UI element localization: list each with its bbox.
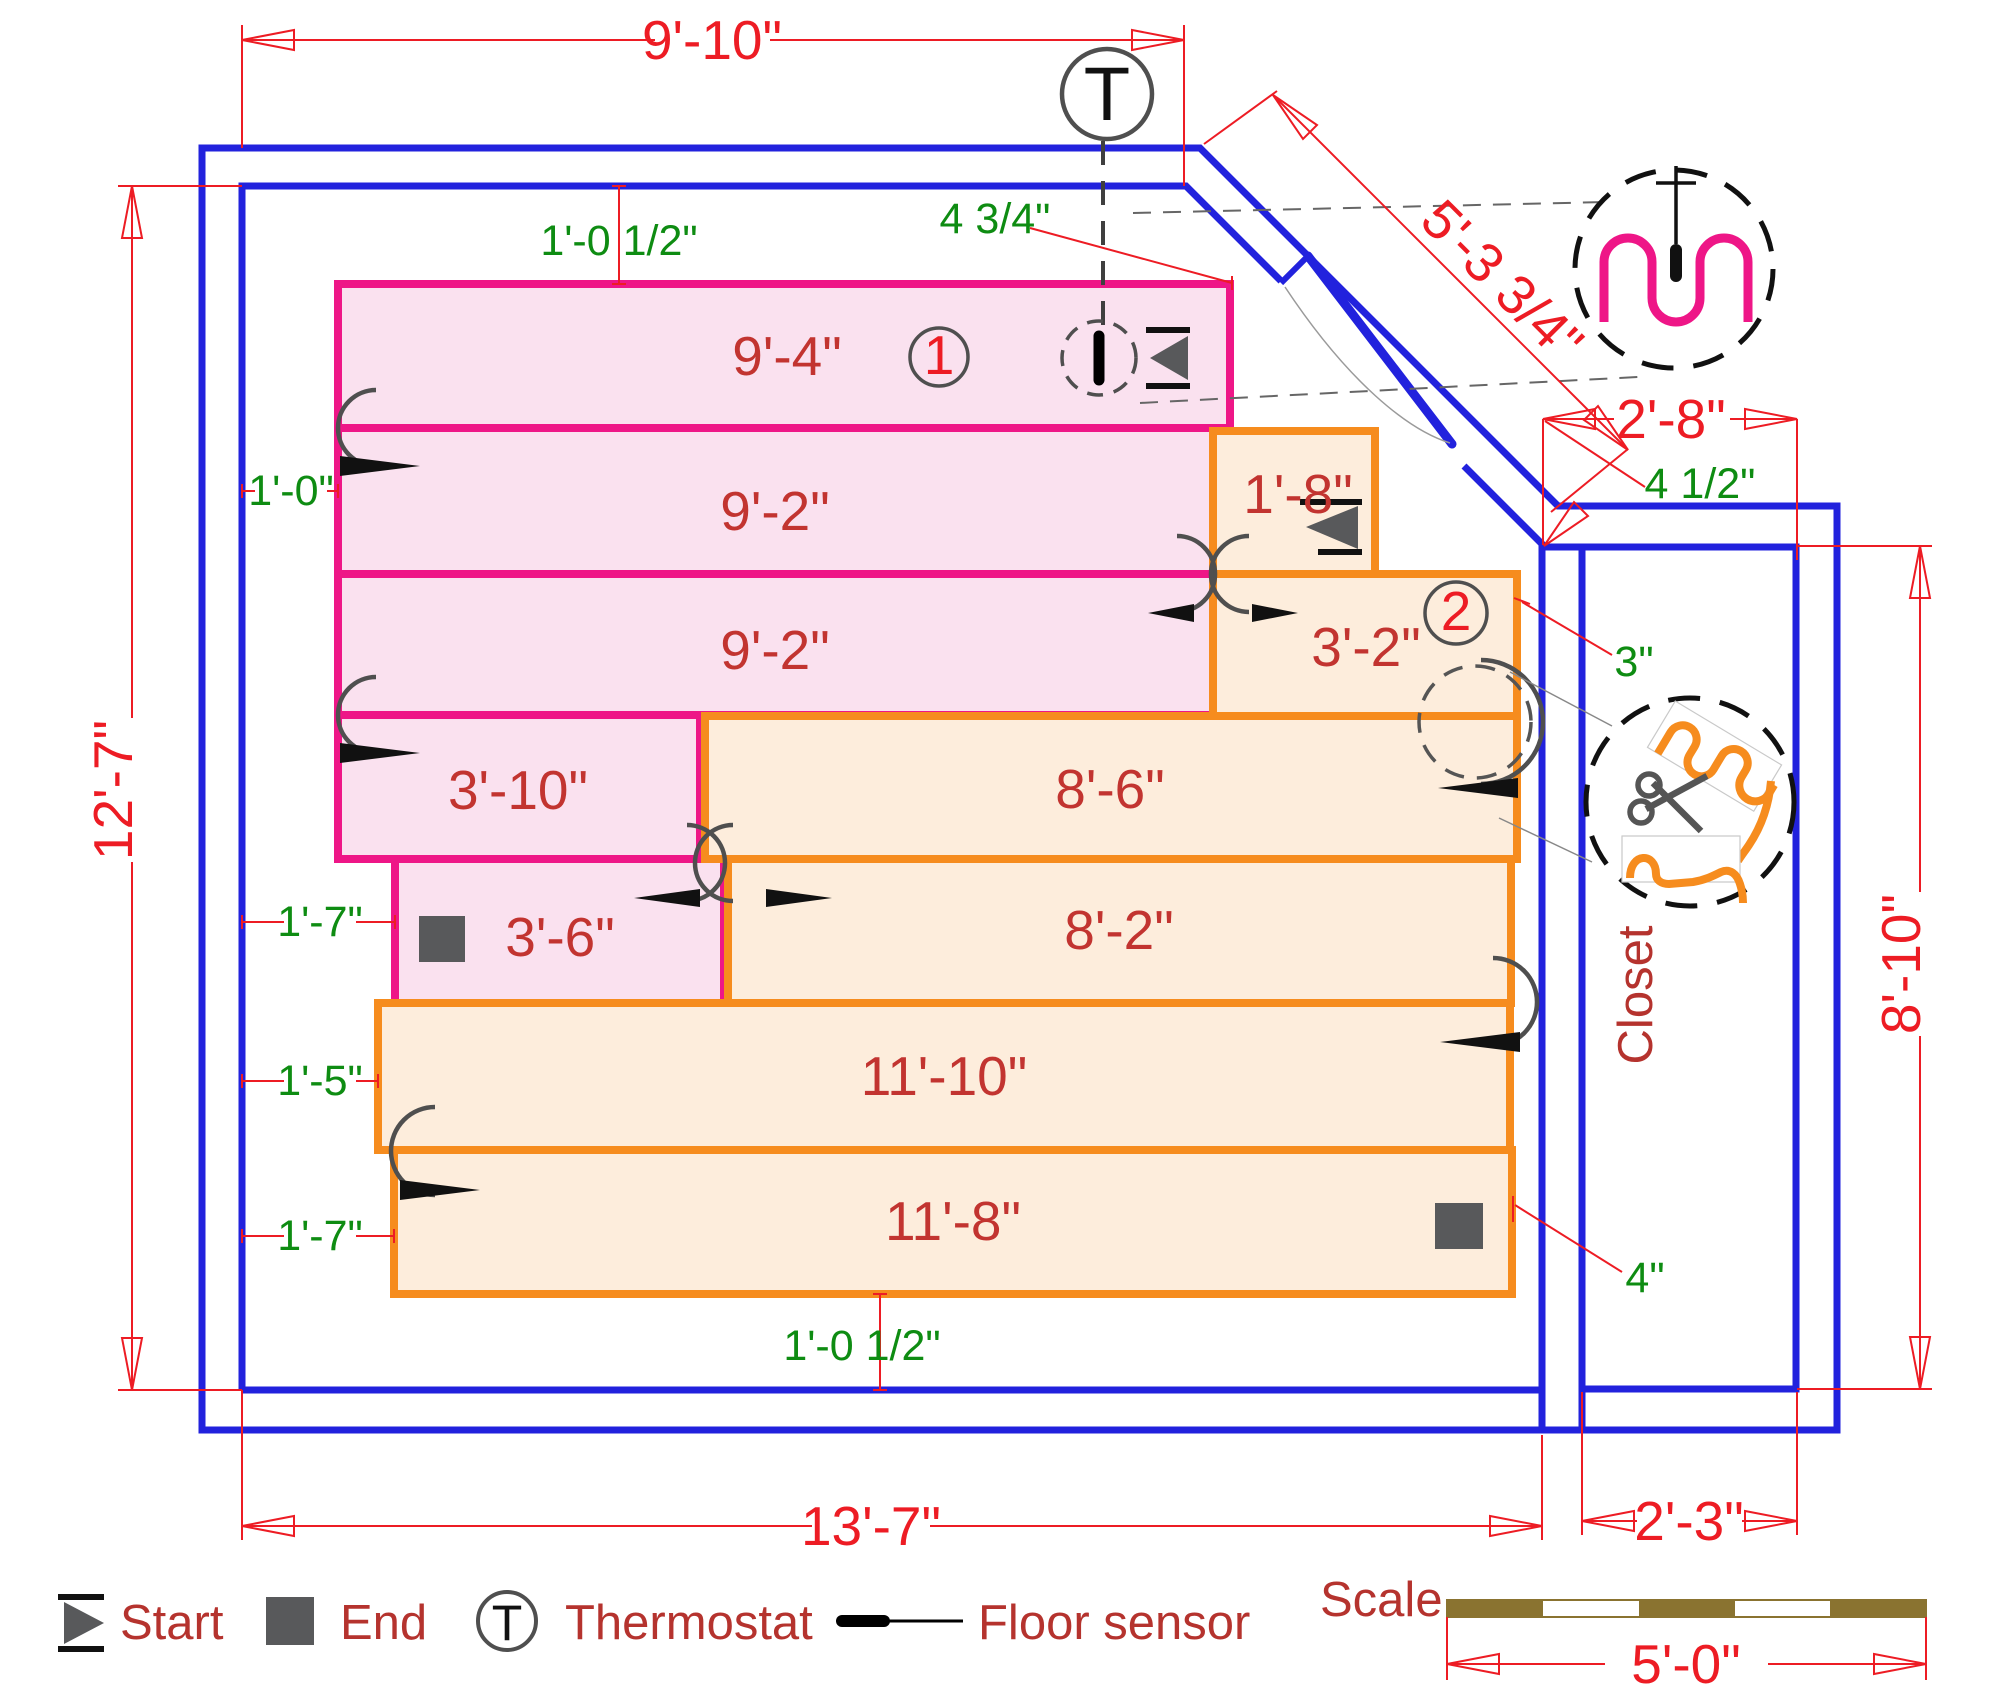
svg-text:8'-2": 8'-2"	[1064, 899, 1174, 961]
svg-text:1'-0": 1'-0"	[248, 467, 334, 515]
svg-text:4": 4"	[1625, 1254, 1664, 1302]
svg-text:9'-4": 9'-4"	[732, 325, 842, 387]
svg-text:2'-8": 2'-8"	[1616, 388, 1726, 450]
svg-text:1'-7": 1'-7"	[277, 898, 363, 946]
svg-text:Start: Start	[120, 1596, 224, 1650]
svg-text:Scale: Scale	[1320, 1573, 1443, 1627]
svg-text:Thermostat: Thermostat	[565, 1596, 813, 1650]
svg-text:9'-2": 9'-2"	[720, 619, 830, 681]
svg-text:8'-6": 8'-6"	[1055, 758, 1165, 820]
svg-text:3'-10": 3'-10"	[448, 759, 588, 821]
svg-text:Floor sensor: Floor sensor	[978, 1596, 1250, 1650]
svg-text:12'-7": 12'-7"	[82, 720, 144, 860]
svg-text:4 3/4": 4 3/4"	[940, 195, 1051, 243]
svg-text:3'-6": 3'-6"	[505, 906, 615, 968]
svg-text:2'-3": 2'-3"	[1634, 1490, 1744, 1552]
svg-text:1'-7": 1'-7"	[277, 1212, 363, 1260]
svg-text:2: 2	[1441, 580, 1472, 642]
svg-text:1'-8": 1'-8"	[1243, 463, 1353, 525]
svg-text:11'-10": 11'-10"	[861, 1045, 1028, 1107]
svg-text:Closet: Closet	[1609, 925, 1663, 1064]
svg-text:11'-8": 11'-8"	[885, 1190, 1021, 1252]
svg-text:3": 3"	[1614, 638, 1653, 686]
svg-text:T: T	[1084, 52, 1130, 137]
svg-text:4 1/2": 4 1/2"	[1645, 460, 1756, 508]
svg-text:8'-10": 8'-10"	[1870, 894, 1932, 1034]
svg-text:1'-0 1/2": 1'-0 1/2"	[540, 217, 697, 265]
svg-text:End: End	[340, 1596, 427, 1650]
svg-text:1: 1	[924, 324, 955, 386]
svg-text:5'-0": 5'-0"	[1631, 1633, 1741, 1695]
svg-text:1'-5": 1'-5"	[277, 1057, 363, 1105]
svg-text:9'-10": 9'-10"	[642, 9, 782, 71]
svg-text:1'-0 1/2": 1'-0 1/2"	[783, 1322, 940, 1370]
svg-text:T: T	[492, 1595, 523, 1651]
svg-text:9'-2": 9'-2"	[720, 480, 830, 542]
svg-text:3'-2": 3'-2"	[1311, 616, 1421, 678]
svg-text:13'-7": 13'-7"	[801, 1495, 941, 1557]
